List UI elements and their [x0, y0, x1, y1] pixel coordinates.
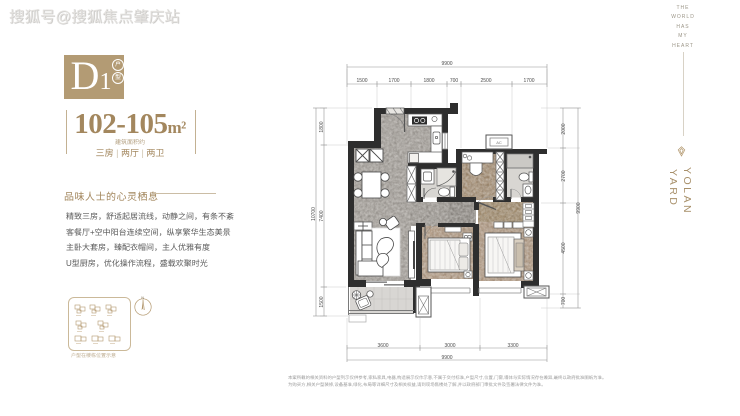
svg-text:7400: 7400 [319, 210, 325, 221]
svg-text:700: 700 [450, 78, 459, 84]
svg-text:3000: 3000 [444, 343, 455, 349]
svg-text:2000: 2000 [561, 123, 567, 134]
svg-text:1700: 1700 [388, 78, 399, 84]
svg-text:1800: 1800 [423, 78, 434, 84]
svg-text:9900: 9900 [576, 202, 582, 213]
svg-text:700: 700 [561, 297, 567, 306]
svg-text:1700: 1700 [523, 78, 534, 84]
svg-text:2500: 2500 [480, 78, 491, 84]
svg-text:9900: 9900 [441, 61, 452, 67]
svg-text:3300: 3300 [507, 343, 518, 349]
svg-text:1500: 1500 [319, 296, 325, 307]
svg-text:10700: 10700 [311, 207, 317, 221]
svg-text:1500: 1500 [356, 78, 367, 84]
svg-text:4500: 4500 [561, 242, 567, 253]
svg-text:AC: AC [496, 140, 502, 145]
svg-text:1800: 1800 [319, 121, 325, 132]
svg-text:9900: 9900 [441, 355, 452, 361]
svg-text:3600: 3600 [377, 343, 388, 349]
svg-text:2700: 2700 [561, 170, 567, 181]
